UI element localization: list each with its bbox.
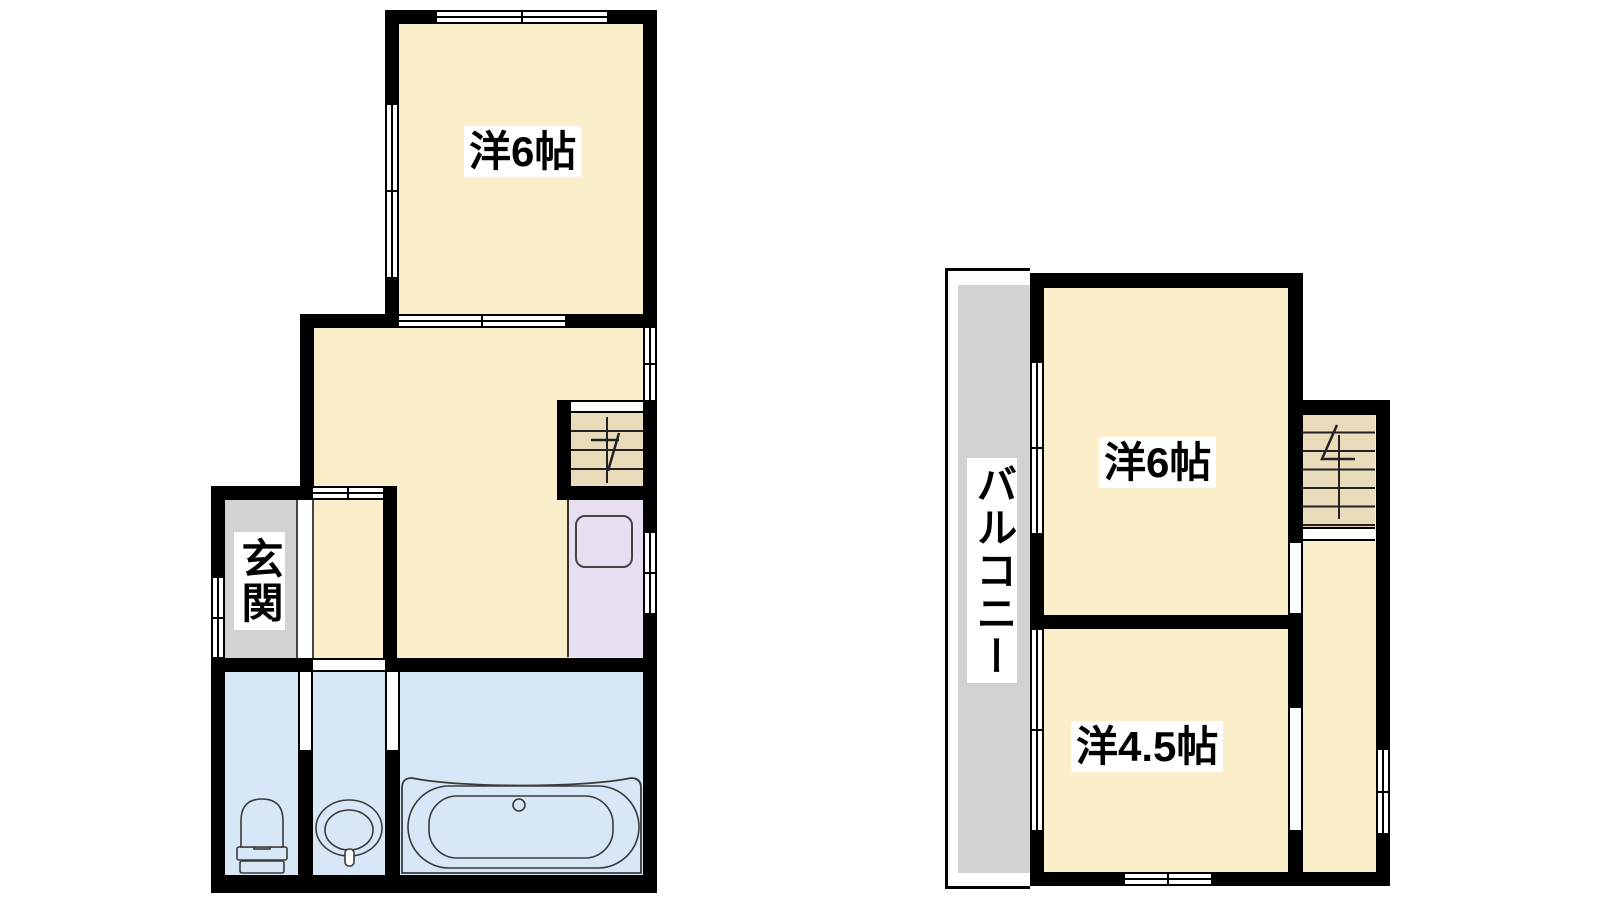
wall xyxy=(557,486,657,500)
floor-plan: 洋6帖 玄関 洋6帖 洋4.5帖 バルコニー xyxy=(0,0,1600,900)
wall xyxy=(643,10,657,893)
window-symbol xyxy=(1030,363,1044,533)
window-symbol xyxy=(643,533,657,613)
entrance-step-line xyxy=(312,500,314,658)
label-balcony: バルコニー xyxy=(967,458,1017,683)
label-entrance: 玄関 xyxy=(234,532,285,630)
door-opening-symbol xyxy=(1288,708,1303,830)
label-western-room-1f: 洋6帖 xyxy=(464,126,581,177)
wall xyxy=(300,314,314,500)
window-symbol xyxy=(643,328,657,400)
wall xyxy=(557,400,571,500)
stairs-up-arrow-icon xyxy=(1303,415,1375,527)
window-symbol xyxy=(437,10,607,24)
wall xyxy=(211,658,225,893)
balcony-outline xyxy=(945,268,1030,271)
door-opening-symbol xyxy=(313,486,383,500)
stairs-opening-line xyxy=(571,400,643,413)
door-opening-symbol xyxy=(1288,543,1303,613)
washbasin-icon xyxy=(313,796,385,868)
entrance-door-symbol xyxy=(211,578,225,657)
label-western-room-45-2f: 洋4.5帖 xyxy=(1071,721,1223,772)
bathtub-icon xyxy=(400,772,643,875)
toilet-icon xyxy=(235,795,289,875)
wall xyxy=(211,875,657,893)
door-opening-symbol xyxy=(385,672,400,750)
balcony-outline xyxy=(945,886,1030,889)
stairs-1f xyxy=(571,413,643,487)
stairs-down-arrow-icon xyxy=(571,413,643,487)
wall xyxy=(383,486,397,672)
stairs-opening-line xyxy=(1303,527,1375,541)
stairs-2f xyxy=(1303,415,1375,527)
window-symbol xyxy=(1125,872,1211,886)
window-symbol xyxy=(1030,630,1044,830)
wall xyxy=(211,658,657,672)
wall xyxy=(1030,273,1303,288)
door-opening-symbol xyxy=(313,658,385,672)
wall xyxy=(1030,615,1303,629)
window-symbol xyxy=(1376,750,1390,833)
balcony-outline xyxy=(945,268,948,889)
label-western-room-2f: 洋6帖 xyxy=(1099,437,1216,488)
window-symbol xyxy=(385,105,399,277)
door-opening-symbol xyxy=(399,314,565,328)
door-opening-symbol xyxy=(298,672,313,750)
kitchen-sink-icon xyxy=(575,515,633,568)
